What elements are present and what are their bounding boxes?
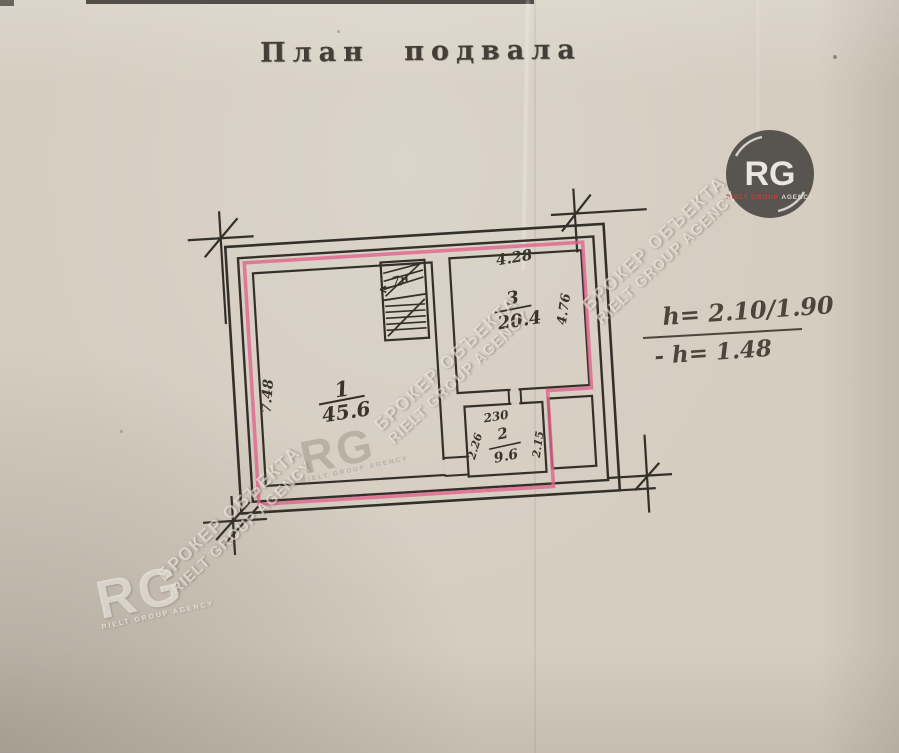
height-annotation-2: - h= 1.48 (654, 335, 773, 370)
dimension-room2-left: 2.26 (465, 431, 485, 462)
room-1-area: 45.6 (320, 396, 372, 427)
logo-brand-text: RIELT GROUP (726, 194, 779, 201)
dimension-room2-right: 2.15 (530, 430, 547, 459)
floor-plan-drawing: 1 45.6 3 20.4 4.28 4.76 2 9.6 230 2.26 2… (0, 0, 899, 753)
plan-outline-highlight (244, 242, 597, 504)
side-room-walls (548, 396, 596, 469)
height-annotations: h= 2.10/1.90 - h= 1.48 (643, 290, 835, 370)
stairs-label: 7н (390, 271, 410, 289)
dimension-left-wall: 7.48 (259, 378, 278, 414)
room-2-number: 2 (495, 424, 510, 444)
room-2-area: 9.6 (493, 446, 520, 467)
logo-initials: RG (745, 155, 796, 193)
outer-walls (225, 224, 620, 514)
logo-wordmark: RIELT GROUPAGENCY (726, 194, 814, 201)
dimension-room3-right: 4.76 (555, 292, 575, 326)
floor-plan: 1 45.6 3 20.4 4.28 4.76 2 9.6 230 2.26 2… (184, 184, 675, 557)
logo-suffix-text: AGENCY (781, 194, 814, 201)
room-walls (253, 250, 597, 489)
dimension-room2-top: 230 (482, 407, 511, 425)
dimension-room3-top: 4.28 (495, 245, 535, 269)
height-annotation-1: h= 2.10/1.90 (661, 290, 834, 331)
room-3-number: 3 (505, 287, 520, 310)
rg-agency-logo: RG RIELT GROUPAGENCY (714, 118, 826, 230)
scanned-floor-plan-page: План подвала (0, 0, 899, 753)
